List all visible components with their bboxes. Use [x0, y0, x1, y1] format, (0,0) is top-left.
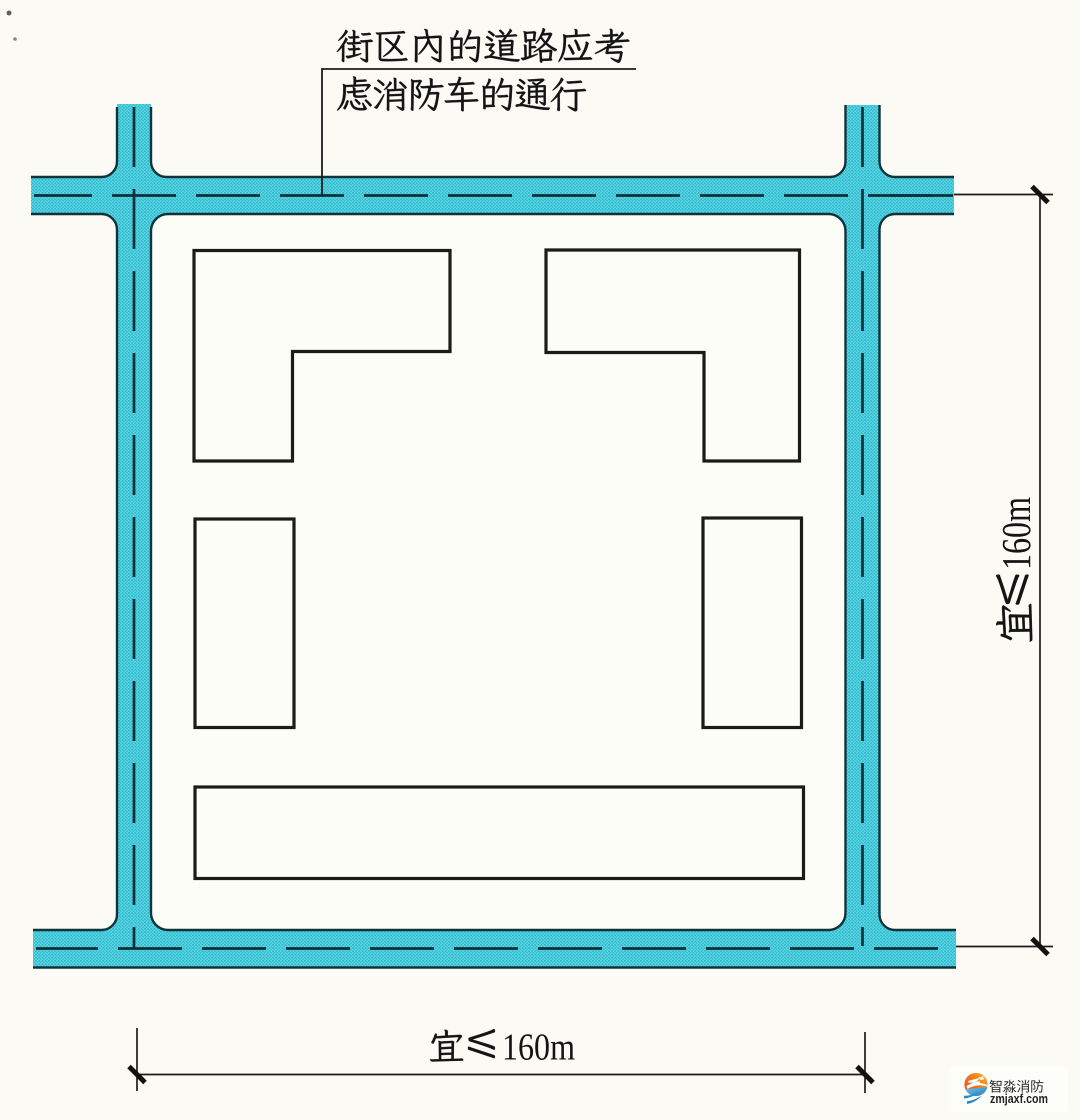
svg-text:zmjaxf.com: zmjaxf.com — [990, 1091, 1048, 1106]
svg-text:160m: 160m — [993, 497, 1039, 570]
svg-text:160m: 160m — [502, 1027, 575, 1069]
